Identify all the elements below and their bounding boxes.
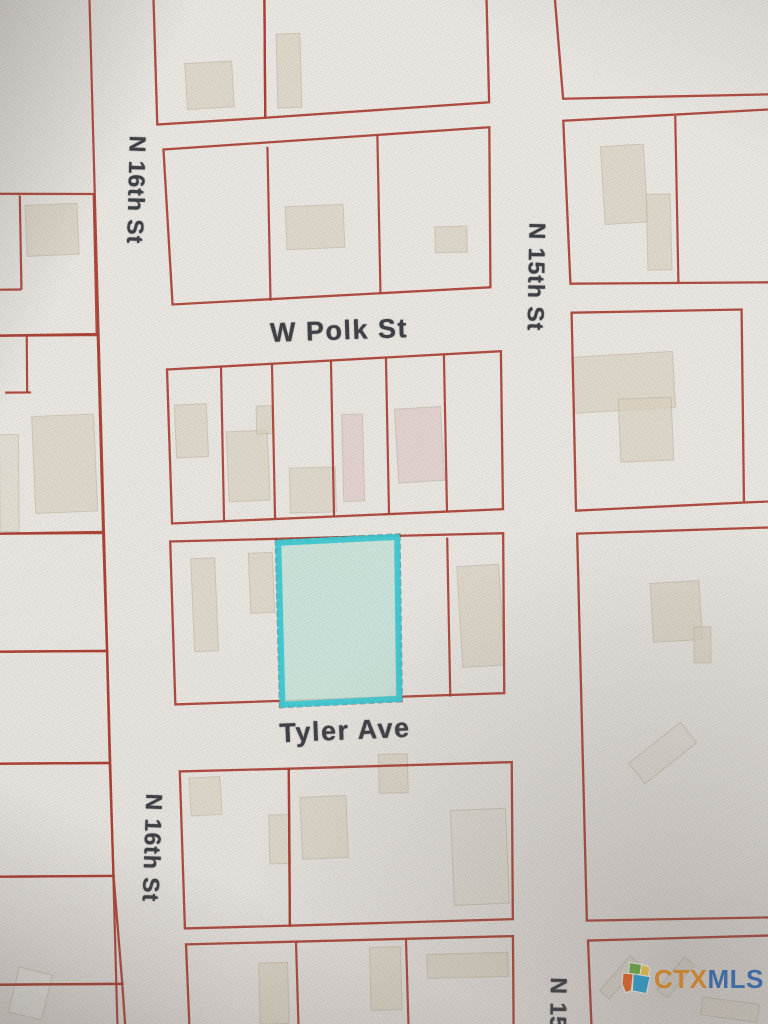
building-footprint bbox=[435, 226, 468, 253]
building-footprint bbox=[259, 962, 289, 1024]
building-footprint bbox=[32, 414, 98, 514]
parcel-map bbox=[0, 0, 768, 1024]
parcel-west-3 bbox=[0, 533, 107, 652]
map-root bbox=[0, 0, 768, 1024]
ctxmls-logo: CTXMLS bbox=[621, 961, 764, 998]
mls-text: MLS bbox=[708, 964, 764, 994]
building-footprint bbox=[369, 947, 402, 1011]
building-footprint bbox=[600, 144, 648, 224]
icon-piece-blue bbox=[632, 974, 650, 994]
building-footprint bbox=[269, 814, 291, 863]
building-footprint bbox=[427, 952, 509, 978]
parcel-line bbox=[406, 939, 409, 1024]
street-label-w-polk-st: W Polk St bbox=[269, 313, 408, 349]
ctxmls-texas-icon bbox=[621, 961, 653, 998]
building-footprint bbox=[694, 627, 711, 663]
parcel-line bbox=[272, 364, 275, 519]
building-footprint bbox=[191, 558, 219, 652]
parcel-line bbox=[386, 357, 389, 514]
parcel-line bbox=[20, 196, 22, 290]
building-footprint bbox=[394, 406, 444, 483]
building-footprint bbox=[300, 795, 349, 859]
parcel-east-top bbox=[554, 0, 768, 99]
plat-map-photo: W Polk St Tyler Ave N 16th St N 16th St … bbox=[0, 0, 768, 1024]
building-footprint bbox=[618, 397, 674, 462]
parcel-line bbox=[296, 942, 299, 1024]
building-footprint bbox=[457, 564, 505, 667]
building-footprint bbox=[342, 414, 365, 501]
building-footprint bbox=[646, 194, 672, 271]
parcel-west-6 bbox=[0, 876, 122, 985]
building-footprint bbox=[285, 204, 345, 249]
building-footprint bbox=[0, 435, 19, 532]
building-footprint bbox=[189, 776, 222, 816]
parcel-line bbox=[444, 355, 447, 512]
street-label-n-15th-st: N 15th St bbox=[522, 222, 551, 331]
parcel-block-bottom-central bbox=[186, 936, 514, 1024]
building-footprint bbox=[289, 467, 336, 513]
ctxmls-wordmark: CTXMLS bbox=[654, 964, 764, 995]
parcel-line bbox=[447, 538, 450, 697]
parcel-west-4 bbox=[0, 651, 110, 764]
building-footprint bbox=[276, 33, 302, 108]
building-footprint bbox=[450, 808, 509, 905]
building-footprint bbox=[185, 61, 235, 110]
parcel-line bbox=[89, 0, 117, 1024]
building-footprint bbox=[248, 552, 274, 613]
street-label-n-15th-st-bottom: N 15t bbox=[544, 977, 572, 1024]
building-footprint bbox=[629, 722, 697, 783]
building-footprint bbox=[226, 430, 270, 502]
building-footprint bbox=[174, 404, 208, 458]
parcel-west-5 bbox=[0, 763, 114, 877]
parcel-line bbox=[744, 501, 768, 502]
ctx-text: CTX bbox=[654, 964, 708, 994]
street-label-n-16th-st-lower: N 16th St bbox=[137, 793, 168, 903]
highlighted-parcel bbox=[278, 537, 399, 705]
parcel-line bbox=[377, 135, 380, 294]
parcel-line bbox=[675, 116, 678, 283]
parcel-line bbox=[267, 147, 270, 301]
street-label-tyler-ave: Tyler Ave bbox=[279, 713, 411, 750]
building-footprint bbox=[256, 406, 273, 434]
building-footprint bbox=[378, 754, 408, 794]
building-footprint bbox=[701, 997, 760, 1022]
building-footprint bbox=[8, 967, 52, 1020]
street-label-n-16th-st-upper: N 16th St bbox=[121, 135, 151, 244]
parcel-line bbox=[221, 366, 224, 521]
icon-piece-orange bbox=[622, 973, 633, 993]
building-footprint bbox=[25, 203, 79, 256]
